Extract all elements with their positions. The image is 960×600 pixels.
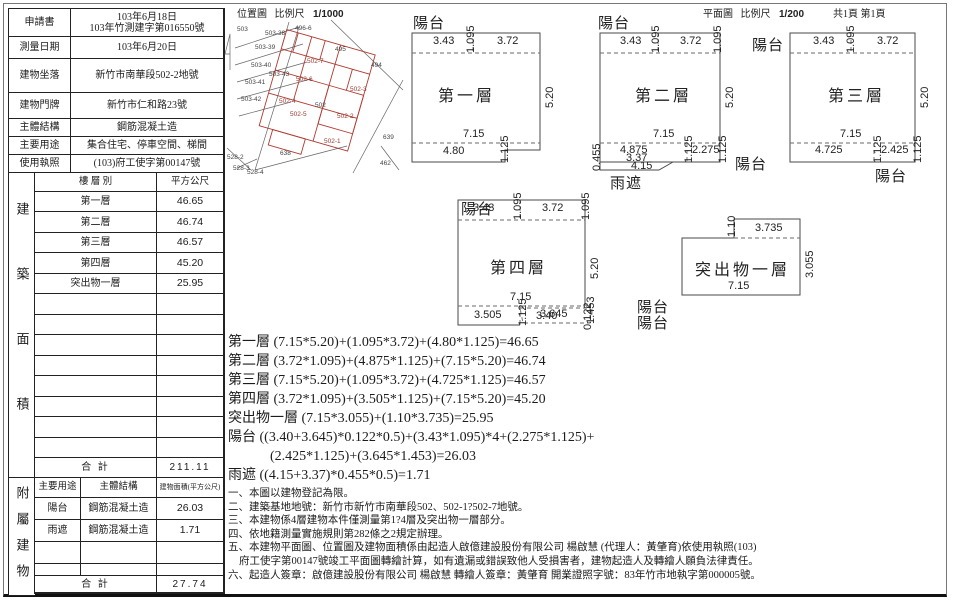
attached-structure: 鋼筋混凝土造 (81, 498, 157, 520)
parcel-number-label: 502-2 (337, 113, 354, 120)
dimension-label: 7.15 (728, 280, 749, 292)
text-line: 雨遮 ((4.15+3.37)*0.455*0.5)=1.71 (228, 466, 668, 485)
dimension-label: 5.20 (544, 87, 556, 108)
table-cell (157, 315, 224, 335)
info-value: 新竹市南華段502-2地號 (71, 59, 224, 93)
info-value: 鋼筋混凝土造 (71, 119, 224, 137)
text-line: 陽台 ((3.40+3.645)*0.122*0.5)+(3.43*1.095)… (228, 428, 668, 447)
parcel-number-label: 502 (315, 102, 326, 109)
dimension-label: 3.72 (877, 35, 898, 47)
floor-name-label: 第二層 (635, 82, 692, 106)
dimension-label: 0.455 (591, 143, 603, 171)
parcel-number-label: 639 (383, 134, 394, 141)
dimension-label: 1.125 (517, 298, 529, 326)
floor-name: 第一層 (35, 192, 157, 212)
parcel-number-label: 502-3 (350, 86, 367, 93)
table-cell (35, 417, 157, 437)
text-line: 二、建築基地地號：新竹市新竹市南華段502、502-1?502-7地號。 (228, 501, 946, 515)
floor-plan-scale: 1/200 (779, 9, 804, 20)
parcel-number-label: 462 (380, 160, 391, 167)
floor-name: 第三層 (35, 233, 157, 253)
area-calculation-formulas: 第一層 (7.15*5.20)+(1.095*3.72)+(4.80*1.125… (228, 333, 668, 485)
col-header: 主體結構 (81, 478, 157, 498)
dimension-label: 4.80 (443, 145, 464, 157)
text-line: 第一層 (7.15*5.20)+(1.095*3.72)+(4.80*1.125… (228, 333, 668, 352)
table-cell (35, 438, 157, 458)
table-cell (157, 564, 224, 576)
parcel-number-label: 503 (237, 26, 248, 33)
floor-name: 突出物一層 (35, 274, 157, 294)
plan-floor-2: 陽台3.431.0953.721.095第二層5.207.151.1254.87… (598, 22, 783, 197)
table-cell (35, 542, 81, 564)
parcel-number-label: 496-6 (295, 25, 312, 32)
info-label: 主體結構 (9, 119, 71, 137)
col-header: 平方公尺 (157, 173, 224, 192)
info-table: 申請書103年6月18日 103年竹測建字第016550號測量日期103年6月2… (8, 8, 225, 174)
attached-area: 26.03 (157, 498, 224, 520)
floor-name: 第二層 (35, 212, 157, 232)
attached-structures-table: 主要用途主體結構建物面積(平方公尺)陽台鋼筋混凝土造26.03雨遮鋼筋混凝土造1… (34, 477, 225, 594)
table-cell (35, 564, 81, 576)
dimension-label: 3.43 (473, 202, 494, 214)
text-line: 四、依地籍測量實施規則第282條之2規定辦理。 (228, 528, 946, 542)
parcel-number-label: 494 (371, 62, 382, 69)
floor-name-label: 突出物一層 (695, 256, 790, 280)
info-value: 103年6月18日 103年竹測建字第016550號 (71, 9, 224, 37)
dimension-label: 3.72 (497, 35, 518, 47)
dimension-label: 3.43 (433, 35, 454, 47)
text-line: 五、本建物平面圖、位置圖及建物面積係由起造人啟億建設股份有限公司 楊啟慧 (代理… (228, 541, 946, 555)
text-line: 府工使字第00147號竣工平面圖轉繪計算，如有遺漏或錯誤致他人受損害者，建物起造… (228, 555, 946, 569)
table-cell (35, 335, 157, 355)
text-line: 第三層 (7.15*5.20)+(1.095*3.72)+(4.725*1.12… (228, 371, 668, 390)
parcel-number-label: 638 (280, 150, 291, 157)
dimension-label: 0.122 (582, 302, 594, 330)
annotation-label: 陽台 (637, 312, 669, 333)
dimension-label: 1.095 (712, 25, 724, 53)
parcel-number-label: 503-43 (269, 71, 289, 78)
info-label: 使用執照 (9, 155, 71, 173)
dimension-label: 7.15 (840, 128, 861, 140)
dimension-label: 3.505 (474, 309, 502, 321)
floor-area: 46.65 (157, 192, 224, 212)
text-line: 一、本圖以建物登記為限。 (228, 487, 946, 501)
page-indicator: 共1頁 第1頁 (833, 5, 886, 20)
table-cell (35, 356, 157, 376)
dimension-label: 5.20 (724, 87, 736, 108)
total-value: 27.74 (157, 576, 224, 593)
annotation-label: 陽台 (875, 165, 907, 186)
parcel-number-label: 495 (335, 46, 346, 53)
dimension-label: 1.095 (465, 25, 477, 53)
dimension-label: 2.275 (692, 144, 720, 156)
dimension-label: 1.095 (650, 25, 662, 53)
parcel-number-label: 528-2 (227, 154, 244, 161)
table-cell (157, 542, 224, 564)
table-cell (81, 564, 157, 576)
floor-plan-header: 平面圖 比例尺 1/200 (703, 5, 804, 20)
parcel-number-label: 502-7 (307, 58, 324, 65)
table-cell (35, 376, 157, 396)
total-label: 合 計 (35, 576, 157, 593)
attached-name: 雨遮 (35, 520, 81, 542)
table-cell (157, 335, 224, 355)
dimension-label: 3.72 (680, 35, 701, 47)
parcel-number-label: 502-5 (290, 111, 307, 118)
scale-label: 比例尺 (741, 9, 771, 20)
dimension-label: 1.125 (499, 135, 511, 163)
building-area-table: 樓 層 別平方公尺第一層46.65第二層46.74第三層46.57第四層45.2… (34, 172, 225, 479)
table-cell (35, 397, 157, 417)
floor-area: 46.57 (157, 233, 224, 253)
info-value: 103年6月20日 (71, 37, 224, 59)
floor-name-label: 第四層 (490, 254, 547, 278)
dimension-label: 1.095 (580, 192, 592, 220)
total-value: 211.11 (157, 458, 224, 478)
parcel-number-label: 503-40 (251, 62, 271, 69)
dimension-label: 5.20 (589, 258, 601, 279)
plan-floor-3: 3.431.0953.72第三層5.207.151.1254.7252.4251… (775, 22, 955, 197)
dimension-label: 3.735 (755, 222, 783, 234)
floor-name: 第四層 (35, 253, 157, 273)
attached-area: 1.71 (157, 520, 224, 542)
notes-list: 一、本圖以建物登記為限。二、建築基地地號：新竹市新竹市南華段502、502-1?… (228, 487, 946, 582)
table-cell (157, 294, 224, 314)
parcel-number-label: 503-41 (245, 79, 265, 86)
floor-name-label: 第三層 (828, 82, 885, 106)
text-line: 突出物一層 (7.15*3.055)+(1.10*3.735)=25.95 (228, 409, 668, 428)
attached-table-side-label: 附屬建物 (8, 477, 35, 596)
parcel-number-label: 503-38 (265, 30, 285, 37)
annotation-label: 陽台 (735, 153, 767, 174)
attached-structure: 鋼筋混凝土造 (81, 520, 157, 542)
annotation-label: 陽台 (598, 12, 630, 33)
plan-floor-4: 陽台3.431.0953.721.095第四層5.207.151.1253.50… (450, 190, 665, 340)
parcel-number-label: 502-1 (324, 138, 341, 145)
table-cell (157, 438, 224, 458)
dimension-label: 1.125 (717, 135, 729, 163)
table-cell (157, 376, 224, 396)
col-header: 樓 層 別 (35, 173, 157, 192)
parcel-number-label: 503-39 (255, 44, 275, 51)
text-line: 六、起造人簽章：啟億建設股份有限公司 楊啟慧 轉繪人簽章：黃肇育 開業證照字號：… (228, 569, 946, 583)
table-cell (35, 294, 157, 314)
dimension-label: 7.15 (653, 128, 674, 140)
parcel-number-label: 503-42 (241, 96, 261, 103)
dimension-label: 3.055 (804, 250, 816, 278)
floor-plan-title: 平面圖 (703, 9, 733, 20)
text-line: 第四層 (3.72*1.095)+(3.505*1.125)+(7.15*5.2… (228, 390, 668, 409)
table-cell (81, 542, 157, 564)
table-cell (35, 315, 157, 335)
dimension-label: 4.15 (631, 160, 652, 172)
dimension-label: 2.425 (881, 144, 909, 156)
dimension-label: 3.645 (540, 308, 568, 320)
plan-floor-1: 陽台3.431.0953.72第一層5.207.151.1254.80 (405, 22, 575, 182)
north-arrow-icon (225, 34, 230, 70)
col-header: 建物面積(平方公尺) (157, 478, 224, 498)
dimension-label: 1.095 (512, 192, 524, 220)
annotation-label: 陽台 (413, 12, 445, 33)
dimension-label: 7.15 (463, 128, 484, 140)
text-line: 三、本建物係4層建物本件僅測量第1?4層及突出物一層部分。 (228, 514, 946, 528)
floor-area: 25.95 (157, 274, 224, 294)
dimension-label: 1.125 (912, 135, 924, 163)
info-label: 測量日期 (9, 37, 71, 59)
info-label: 主要用途 (9, 137, 71, 155)
table-cell (157, 356, 224, 376)
dimension-label: 1.10 (726, 216, 738, 237)
location-map: 503503-38496-6503-39503-40503-43503-4150… (225, 18, 410, 173)
info-label: 建物門牌 (9, 93, 71, 119)
table-cell (157, 417, 224, 437)
text-line: (2.425*1.125)+(3.645*1.453)=26.03 (228, 447, 668, 466)
info-label: 建物坐落 (9, 59, 71, 93)
floor-area: 46.74 (157, 212, 224, 232)
dimension-label: 3.43 (620, 35, 641, 47)
parcel-number-label: 502-6 (296, 76, 313, 83)
text-line: 第二層 (3.72*1.095)+(4.875*1.125)+(7.15*5.2… (228, 352, 668, 371)
info-value: 新竹市仁和路23號 (71, 93, 224, 119)
dimension-label: 3.72 (542, 202, 563, 214)
info-value: 集合住宅、停車空間、梯間 (71, 137, 224, 155)
attached-name: 陽台 (35, 498, 81, 520)
area-table-side-label: 建築面積 (8, 172, 35, 485)
total-label: 合 計 (35, 458, 157, 478)
floor-area: 45.20 (157, 253, 224, 273)
plan-protrusion-1: 1.103.735突出物一層3.0557.15 (670, 205, 820, 310)
floor-name-label: 第一層 (438, 82, 495, 106)
dimension-label: 4.725 (815, 144, 843, 156)
dimension-label: 5.20 (919, 87, 931, 108)
info-label: 申請書 (9, 9, 71, 37)
parcel-number-label: 502-4 (279, 98, 296, 105)
dimension-label: 3.43 (813, 35, 834, 47)
parcel-number-label: 528-4 (247, 169, 264, 176)
floor3-plan-drawing (775, 22, 955, 197)
table-cell (157, 397, 224, 417)
dimension-label: 1.095 (845, 25, 857, 53)
col-header: 主要用途 (35, 478, 81, 498)
info-value: (103)府工使字第00147號 (71, 155, 224, 173)
survey-sheet: 申請書103年6月18日 103年竹測建字第016550號測量日期103年6月2… (0, 0, 960, 600)
